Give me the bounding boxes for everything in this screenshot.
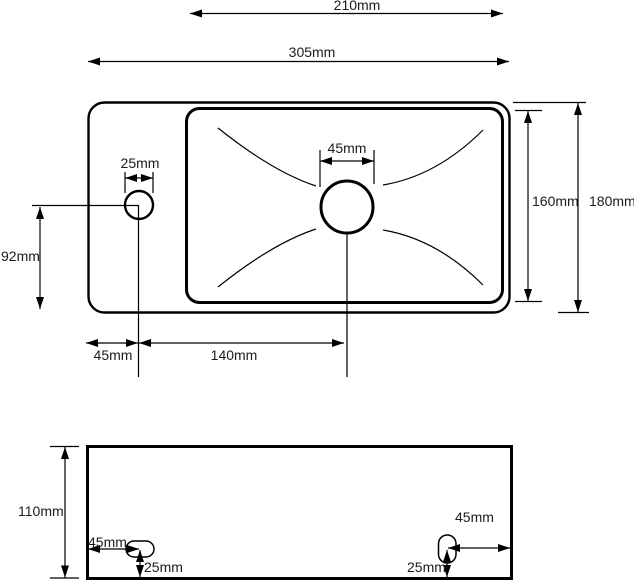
dim-label-140: 140mm xyxy=(211,347,258,363)
dim-label-25: 25mm xyxy=(121,155,160,171)
drain-hole xyxy=(321,181,373,233)
dim-tap-from-left: 45mm xyxy=(86,343,138,363)
dim-label-45-drain: 45mm xyxy=(328,140,367,156)
dim-label-305: 305mm xyxy=(289,44,336,60)
dim-label-45-slot-left: 45mm xyxy=(88,534,127,550)
dim-right-slot-from-right: 45mm xyxy=(448,509,510,548)
dim-label-160: 160mm xyxy=(532,193,579,209)
dim-tap-hole: 25mm xyxy=(121,155,160,193)
dim-label-92: 92mm xyxy=(1,248,40,264)
dim-left-slot-from-bottom: 25mm xyxy=(140,550,183,577)
dim-label-45-left: 45mm xyxy=(94,347,133,363)
dim-tap-from-bottom: 92mm xyxy=(1,207,40,309)
dim-right-slot-from-bottom: 25mm xyxy=(407,550,447,577)
basin-rim xyxy=(187,109,503,303)
dim-basin-depth: 160mm xyxy=(515,111,579,302)
technical-drawing-page: 210mm 305mm 25mm 45mm 92mm xyxy=(0,0,634,582)
dim-label-180: 180mm xyxy=(589,193,634,209)
dim-overall-width: 305mm xyxy=(88,44,509,62)
center-lines xyxy=(32,205,347,377)
slope-curve-bottom-right xyxy=(383,230,483,285)
dim-basin-width: 210mm xyxy=(190,0,503,14)
dim-body-height: 110mm xyxy=(18,447,79,579)
sink-dimension-drawing: 210mm 305mm 25mm 45mm 92mm xyxy=(0,0,634,582)
slope-curve-bottom-left xyxy=(218,229,316,287)
dim-label-25-slot-right: 25mm xyxy=(407,559,446,575)
top-view: 210mm 305mm 25mm 45mm 92mm xyxy=(1,0,634,377)
slope-curve-top-right xyxy=(383,130,483,185)
dim-label-45-slot-right: 45mm xyxy=(455,509,494,525)
dim-tap-to-drain: 140mm xyxy=(139,343,344,363)
bottom-view: 110mm 45mm 25mm 45mm 25mm xyxy=(18,447,512,579)
slope-curve-top-left xyxy=(218,128,316,186)
dim-label-25-slot-left: 25mm xyxy=(144,559,183,575)
dim-label-210: 210mm xyxy=(334,0,381,13)
dim-label-110: 110mm xyxy=(18,503,64,519)
